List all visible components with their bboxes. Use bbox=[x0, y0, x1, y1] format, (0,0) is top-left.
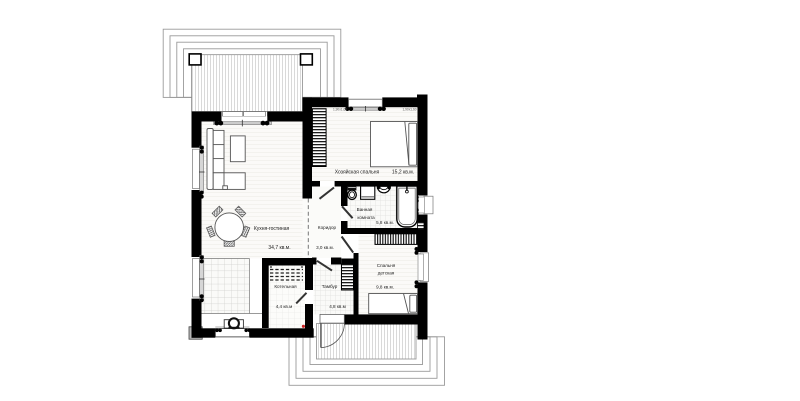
svg-text:Спальня: Спальня bbox=[377, 263, 396, 268]
svg-text:15,2 кв.м.: 15,2 кв.м. bbox=[392, 169, 414, 175]
svg-text:34,7 кв.м.: 34,7 кв.м. bbox=[268, 245, 290, 251]
svg-text:4,4 кв.м: 4,4 кв.м bbox=[276, 304, 293, 309]
svg-text:3,0 кв.м.: 3,0 кв.м. bbox=[316, 245, 334, 250]
svg-text:Ванная: Ванная bbox=[357, 207, 373, 212]
svg-text:9,8 кв.м.: 9,8 кв.м. bbox=[376, 284, 394, 289]
svg-text:1,90х1,60: 1,90х1,60 bbox=[333, 107, 347, 111]
svg-text:5,8 кв.м.: 5,8 кв.м. bbox=[376, 220, 394, 225]
svg-text:Котельная: Котельная bbox=[274, 284, 297, 289]
svg-text:детская: детская bbox=[378, 270, 395, 275]
svg-text:4,8 кв.м: 4,8 кв.м bbox=[329, 304, 346, 309]
svg-text:Тамбур: Тамбур bbox=[322, 284, 338, 289]
svg-text:Кухня-гостиная: Кухня-гостиная bbox=[254, 226, 290, 232]
svg-text:комната: комната bbox=[357, 215, 375, 220]
svg-text:Коридор: Коридор bbox=[318, 225, 337, 230]
svg-text:1,90х1,60: 1,90х1,60 bbox=[403, 107, 417, 111]
svg-text:Хозяйская спальня: Хозяйская спальня bbox=[335, 168, 380, 175]
